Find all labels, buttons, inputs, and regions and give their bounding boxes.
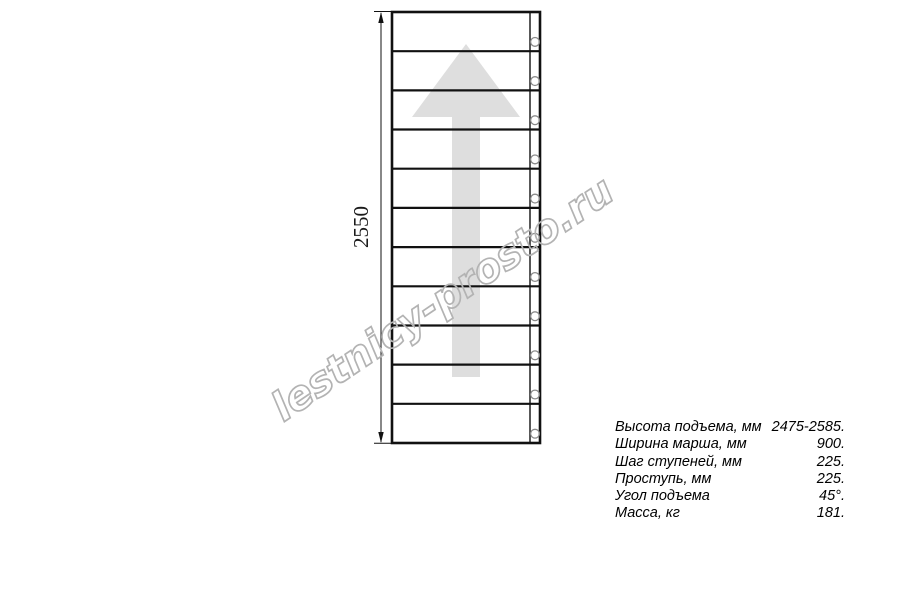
dimension-label: 2550 [349,206,373,248]
dim-arrow-bottom-icon [378,432,383,443]
spec-row: Ширина марша, мм900. [615,436,845,453]
spec-row: Угол подъема45°. [615,488,845,505]
spec-label: Ширина марша, мм [615,436,747,453]
spec-value: 900. [817,436,845,453]
spec-label: Высота подъема, мм [615,419,762,436]
spec-value: 225. [817,471,845,488]
dimension-lines [374,12,392,444]
spec-value: 181. [817,505,845,522]
spec-row: Проступь, мм225. [615,471,845,488]
spec-label: Угол подъема [615,488,710,505]
spec-label: Проступь, мм [615,471,711,488]
spec-table: Высота подъема, мм2475-2585.Ширина марша… [615,419,845,523]
spec-label: Масса, кг [615,505,680,522]
dim-arrow-top-icon [378,12,383,23]
spec-value: 225. [817,454,845,471]
spec-row: Высота подъема, мм2475-2585. [615,419,845,436]
spec-row: Масса, кг181. [615,505,845,522]
spec-value: 45°. [819,488,845,505]
spec-label: Шаг ступеней, мм [615,454,742,471]
spec-value: 2475-2585. [772,419,845,436]
drawing-canvas: 2550 lestnicy-prosto.ru Высота подъема, … [0,0,900,600]
spec-row: Шаг ступеней, мм225. [615,454,845,471]
